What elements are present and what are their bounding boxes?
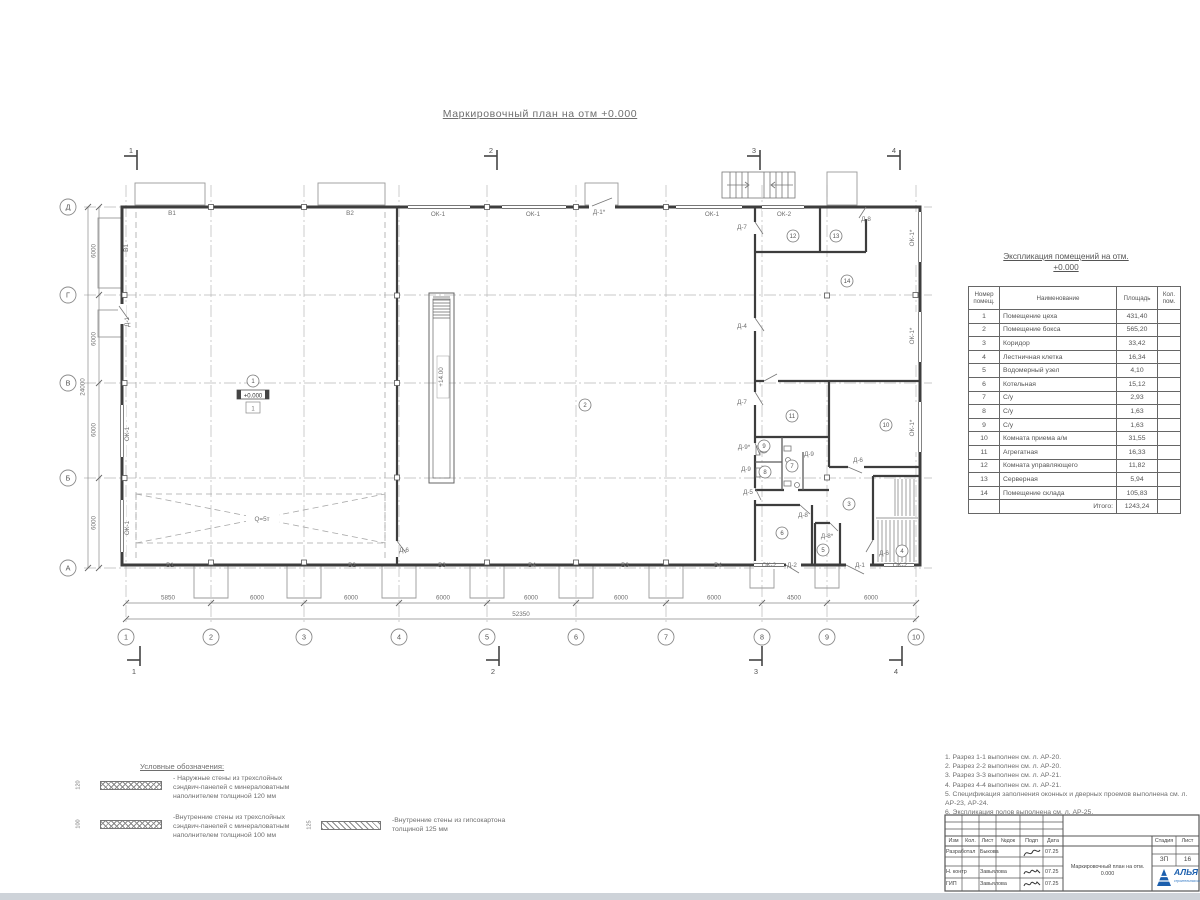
plan-label: ОК-1* (909, 229, 916, 246)
plan-label: В3 (621, 562, 629, 569)
schedule-cell: 16,34 (1117, 350, 1158, 364)
window-bottom-strip (0, 893, 1200, 900)
legend-dim-label: 120 (76, 780, 82, 789)
company-subtitle: строительная компания (1174, 879, 1200, 883)
schedule-cell (1158, 445, 1181, 459)
legend-swatch (100, 781, 162, 790)
legend-item-text: -Внутренние стены из трехслойныхсэндвич-… (173, 813, 289, 841)
schedule-cell: 4 (969, 350, 1000, 364)
schedule-table: Номер помещ.НаименованиеПлощадьКол. пом.… (968, 286, 1181, 514)
schedule-cell: 431,40 (1117, 310, 1158, 324)
schedule-cell: 1243,24 (1117, 500, 1158, 514)
column-markers (122, 205, 918, 566)
schedule-row: 9С/у1,63 (969, 418, 1181, 432)
legend-dim-label: 100 (76, 819, 82, 828)
company-name: АЛЬЯ (1174, 867, 1198, 877)
schedule-cell: 1,63 (1117, 418, 1158, 432)
section-number: 3 (754, 667, 758, 676)
schedule-row: 10Комната приема а/м31,55 (969, 432, 1181, 446)
schedule-cell (1158, 391, 1181, 405)
plan-label: Д-7 (737, 399, 747, 406)
grid-bubble-label: Б (66, 474, 71, 483)
tb-col-list: Лист (979, 838, 996, 845)
plan-label: В3 (438, 562, 446, 569)
dim-text: 6000 (614, 595, 629, 602)
schedule-row: 1Помещение цеха431,40 (969, 310, 1181, 324)
shaft (429, 293, 454, 483)
schedule-cell (1158, 500, 1181, 514)
door-symbols (119, 198, 873, 574)
room-schedule-table: Номер помещ.НаименованиеПлощадьКол. пом.… (968, 286, 1181, 514)
schedule-cell: Агрегатная (1000, 445, 1117, 459)
plan-label: Д-9 (741, 466, 751, 473)
grid-bubble-label: В (66, 379, 71, 388)
schedule-cell: 31,55 (1117, 432, 1158, 446)
schedule-row: 8С/у1,63 (969, 405, 1181, 419)
schedule-cell: 8 (969, 405, 1000, 419)
plan-label: +14.00 (438, 367, 445, 387)
grid-bubbles: 12345678910ДГВБА (60, 199, 924, 645)
plan-label: Д-7 (737, 224, 747, 231)
section-number: 1 (129, 146, 133, 155)
schedule-row: 7С/у2,93 (969, 391, 1181, 405)
schedule-cell: 11,82 (1117, 459, 1158, 473)
exterior-stair (722, 172, 795, 198)
schedule-cell: 4,10 (1117, 364, 1158, 378)
tb-date-developer: 07.25 (1045, 849, 1059, 856)
plan-label: В4 (714, 562, 722, 569)
note-line: 5. Спецификация заполнения оконных и две… (945, 790, 1200, 808)
grid-bubble-label: 10 (912, 633, 920, 642)
schedule-cell (969, 500, 1000, 514)
signature-ncontrol (1022, 866, 1042, 878)
schedule-cell: Итого: (1000, 500, 1117, 514)
plan-label: Д-6 (399, 547, 409, 554)
plan-label: ОК-1 (705, 211, 720, 218)
plan-label: ОК-1 (526, 211, 541, 218)
plan-label: Q=5т (255, 516, 270, 523)
plan-label: ОК-1 (124, 426, 131, 441)
legend-text-line: -Внутренние стены из трехслойных (173, 813, 289, 822)
schedule-cell: 1 (969, 310, 1000, 324)
schedule-cell: 16,33 (1117, 445, 1158, 459)
grid-bubble-label: 6 (574, 633, 578, 642)
legend-text-line: сэндвич-панелей с минераловатным (173, 783, 289, 792)
plan-label: Д-8* (821, 533, 834, 540)
room-number: 12 (790, 234, 797, 240)
legend-text-line: наполнителем толщиной 120 мм (173, 792, 289, 801)
plan-label: В4 (528, 562, 536, 569)
tb-doc-title: Маркировочный план на отм. 0.000 (1065, 864, 1150, 878)
plan-label: В2 (346, 210, 354, 217)
tb-date-gip: 07.25 (1045, 881, 1059, 888)
section-number: 3 (752, 146, 756, 155)
grid-bubble-label: 4 (397, 633, 401, 642)
plan-label: Д-8 (798, 512, 808, 519)
schedule-row: 6Котельная15,12 (969, 377, 1181, 391)
schedule-cell: 6 (969, 377, 1000, 391)
schedule-cell: 5 (969, 364, 1000, 378)
tb-role-ncontrol: Н. контр (946, 869, 967, 876)
legend-text-line: -Внутренние стены из гипсокартона (392, 816, 505, 825)
plan-label: ОК-2 (893, 562, 908, 569)
plan-label: Д-1* (593, 209, 606, 216)
plan-label: ОК-2 (777, 211, 792, 218)
grid-bubble-label: 5 (485, 633, 489, 642)
section-number: 1 (132, 667, 136, 676)
dim-text: 5850 (161, 595, 176, 602)
section-number: 2 (489, 146, 493, 155)
schedule-cell (1158, 405, 1181, 419)
legend-item-text: -Внутренние стены из гипсокартонатолщино… (392, 816, 505, 834)
schedule-cell: Лестничная клетка (1000, 350, 1117, 364)
section-number: 4 (894, 667, 898, 676)
schedule-cell: Помещение цеха (1000, 310, 1117, 324)
tb-name-developer: Быкова (980, 849, 999, 856)
grid-bubble-label: Д (66, 203, 71, 212)
grid-bubble-label: А (66, 564, 71, 573)
signature-developer (1022, 847, 1042, 859)
schedule-cell: Коридор (1000, 337, 1117, 351)
note-line: 6. Экспликация полов выполнена см. л. АР… (945, 808, 1200, 817)
plan-label: Д-9* (738, 444, 751, 451)
schedule-cell: 33,42 (1117, 337, 1158, 351)
schedule-header: Площадь (1117, 287, 1158, 310)
schedule-cell: 7 (969, 391, 1000, 405)
section-number: 2 (491, 667, 495, 676)
schedule-row: 14Помещение склада105,83 (969, 486, 1181, 500)
tb-stage-label: Стадия (1152, 838, 1176, 845)
note-line: 1. Разрез 1-1 выполнен см. л. АР-20. (945, 753, 1200, 762)
schedule-cell: 13 (969, 473, 1000, 487)
legend-text-line: наполнителем толщиной 100 мм (173, 831, 289, 840)
schedule-cell (1158, 364, 1181, 378)
schedule-cell: Помещение бокса (1000, 323, 1117, 337)
legend-text-line: - Наружные стены из трехслойных (173, 774, 289, 783)
grid-bubble-label: 1 (124, 633, 128, 642)
plan-label: Д-4 (737, 323, 747, 330)
plan-label: Д-5 (743, 489, 753, 496)
dim-text: 6000 (524, 595, 539, 602)
schedule-cell: 565,20 (1117, 323, 1158, 337)
schedule-cell: Серверная (1000, 473, 1117, 487)
plan-label: В2 (348, 562, 356, 569)
plan-label: В1 (166, 562, 174, 569)
schedule-cell: Помещение склада (1000, 486, 1117, 500)
plan-label: Д-2 (787, 562, 797, 569)
interior-walls (397, 207, 920, 565)
level-mark (237, 390, 279, 523)
plan-label: В1 (168, 210, 176, 217)
schedule-cell: 12 (969, 459, 1000, 473)
schedule-row: 12Комната управляющего11,82 (969, 459, 1181, 473)
room-number: 14 (844, 279, 851, 285)
grid-bubble-label: Г (66, 291, 70, 300)
schedule-cell: С/у (1000, 391, 1117, 405)
plan-label: Д-1 (124, 317, 131, 327)
plan-label: ОК-1* (909, 419, 916, 436)
legend-item-text: - Наружные стены из трехслойныхсэндвич-п… (173, 774, 289, 802)
tb-date-ncontrol: 07.25 (1045, 869, 1059, 876)
legend-swatch (321, 821, 381, 830)
tb-role-gip: ГИП (946, 881, 957, 888)
section-marks: 12341234 (124, 146, 902, 676)
plan-label: ОК-1* (909, 327, 916, 344)
schedule-cell: Комната приема а/м (1000, 432, 1117, 446)
schedule-row: 4Лестничная клетка16,34 (969, 350, 1181, 364)
level-mark-text: +0.000 (244, 393, 263, 399)
dim-text: 6000 (91, 516, 98, 531)
tb-role-developer: Разработал (946, 849, 975, 856)
schedule-cell (1158, 459, 1181, 473)
schedule-cell (1158, 310, 1181, 324)
schedule-cell (1158, 377, 1181, 391)
schedule-total-row: Итого:1243,24 (969, 500, 1181, 514)
legend-dim-label: 125 (307, 820, 313, 829)
plan-label: Д-8 (861, 216, 871, 223)
schedule-header: Номер помещ. (969, 287, 1000, 310)
tb-col-ndok: №док (996, 838, 1020, 845)
schedule-row: 2Помещение бокса565,20 (969, 323, 1181, 337)
schedule-row: 5Водомерный узел4,10 (969, 364, 1181, 378)
schedule-cell (1158, 337, 1181, 351)
tb-name-ncontrol: Завьялова (980, 869, 1007, 876)
dim-total: 24000 (80, 378, 87, 396)
dim-text: 6000 (344, 595, 359, 602)
room-number: 10 (883, 423, 890, 429)
plan-label: Д-6 (853, 457, 863, 464)
drawing-sheet: { "sheet": { "title": "Маркировочный пла… (0, 0, 1200, 900)
notes-list: 1. Разрез 1-1 выполнен см. л. АР-20.2. Р… (945, 753, 1200, 817)
schedule-cell: С/у (1000, 405, 1117, 419)
grid-bubble-label: 7 (664, 633, 668, 642)
dim-text: 6000 (864, 595, 879, 602)
schedule-cell (1158, 323, 1181, 337)
exterior-elements (98, 172, 857, 598)
tb-sheet-value: 16 (1176, 856, 1199, 863)
schedule-header: Наименование (1000, 287, 1117, 310)
legend-text-line: толщиной 125 мм (392, 825, 505, 834)
schedule-cell: 2 (969, 323, 1000, 337)
schedule-title-line1: Экспликация помещений на отм. (1003, 252, 1128, 261)
tb-name-gip: Завьялова (980, 881, 1007, 888)
plan-label: Д-9 (804, 451, 814, 458)
schedule-cell (1158, 350, 1181, 364)
dim-text: 6000 (250, 595, 265, 602)
plan-label: Д-6 (879, 550, 889, 557)
tb-col-kol: Кол. (962, 838, 979, 845)
plan-label: Д-1 (855, 562, 865, 569)
room-number: 11 (789, 414, 796, 420)
schedule-cell: 1,63 (1117, 405, 1158, 419)
schedule-row: 3Коридор33,42 (969, 337, 1181, 351)
company-logo-icon (1157, 869, 1171, 886)
grid-bubble-label: 2 (209, 633, 213, 642)
schedule-cell: 9 (969, 418, 1000, 432)
room-number: 13 (833, 234, 840, 240)
tb-col-izm: Изм (945, 838, 962, 845)
legend-title: Условные обозначения: (140, 762, 224, 771)
schedule-cell: Комната управляющего (1000, 459, 1117, 473)
legend-swatch (100, 820, 162, 829)
tb-sheet-label: Лист (1176, 838, 1199, 845)
schedule-title-line2: +0.000 (1053, 263, 1078, 272)
plan-label: ОК-1 (431, 211, 446, 218)
schedule-cell (1158, 486, 1181, 500)
tb-col-podp: Подп (1020, 838, 1043, 845)
tb-col-data: Дата (1043, 838, 1063, 845)
schedule-cell: 15,12 (1117, 377, 1158, 391)
section-number: 4 (892, 146, 896, 155)
schedule-cell: С/у (1000, 418, 1117, 432)
plan-label: В1 (123, 244, 130, 252)
crane-zone (136, 212, 385, 560)
schedule-cell: Котельная (1000, 377, 1117, 391)
dim-text: 6000 (91, 332, 98, 347)
signature-gip (1022, 878, 1042, 890)
schedule-row: 11Агрегатная16,33 (969, 445, 1181, 459)
grid-bubble-label: 9 (825, 633, 829, 642)
schedule-row: 13Серверная5,94 (969, 473, 1181, 487)
grid-bubble-label: 3 (302, 633, 306, 642)
schedule-cell: 5,94 (1117, 473, 1158, 487)
plan-label: ОК-2 (762, 562, 777, 569)
dim-text: 6000 (436, 595, 451, 602)
schedule-cell: 10 (969, 432, 1000, 446)
schedule-cell: 3 (969, 337, 1000, 351)
schedule-header: Кол. пом. (1158, 287, 1181, 310)
schedule-cell: 14 (969, 486, 1000, 500)
tb-stage-value: ЗП (1152, 856, 1176, 863)
note-line: 4. Разрез 4-4 выполнен см. л. АР-21. (945, 781, 1200, 790)
plan-labels: В1В2ОК-1ОК-1Д-1*ОК-1ОК-2Д-8Д-7Д-4Д-7Д-9*… (123, 209, 916, 569)
page-title: Маркировочный план на отм +0.000 (400, 108, 680, 120)
schedule-cell (1158, 473, 1181, 487)
dim-text: 6000 (91, 423, 98, 438)
schedule-title: Экспликация помещений на отм. +0.000 (966, 252, 1166, 273)
dim-text: 6000 (91, 244, 98, 259)
schedule-cell: Водомерный узел (1000, 364, 1117, 378)
schedule-cell: 11 (969, 445, 1000, 459)
note-line: 2. Разрез 2-2 выполнен см. л. АР-20. (945, 762, 1200, 771)
dim-text: 4500 (787, 595, 802, 602)
note-line: 3. Разрез 3-3 выполнен см. л. АР-21. (945, 771, 1200, 780)
dim-text: 6000 (707, 595, 722, 602)
dim-total: 52350 (512, 611, 530, 618)
schedule-cell: 2,93 (1117, 391, 1158, 405)
legend-text-line: сэндвич-панелей с минераловатным (173, 822, 289, 831)
grid-bubble-label: 8 (760, 633, 764, 642)
schedule-cell (1158, 418, 1181, 432)
plan-label: ОК-1 (124, 520, 131, 535)
schedule-cell (1158, 432, 1181, 446)
schedule-cell: 105,83 (1117, 486, 1158, 500)
